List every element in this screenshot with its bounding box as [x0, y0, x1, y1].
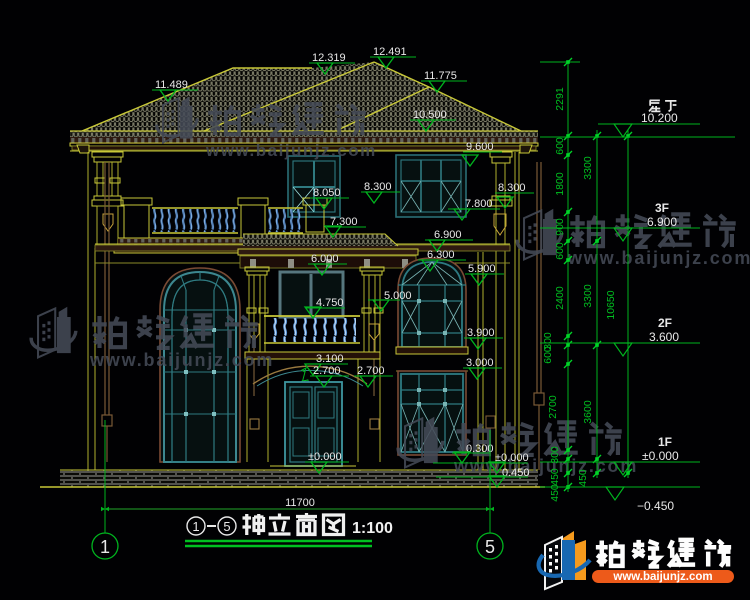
svg-text:450: 450 [577, 469, 589, 487]
svg-text:11.775: 11.775 [424, 70, 457, 82]
svg-text:12.491: 12.491 [373, 46, 407, 58]
svg-text:5: 5 [223, 519, 230, 534]
svg-text:2F: 2F [658, 316, 672, 330]
svg-text:11.489: 11.489 [155, 79, 188, 91]
svg-text:6.300: 6.300 [427, 249, 455, 261]
svg-text:6.000: 6.000 [311, 253, 339, 265]
svg-text:3.100: 3.100 [316, 353, 344, 365]
svg-text:www.baijunjz.com: www.baijunjz.com [205, 141, 377, 160]
svg-text:www.baijunjz.com: www.baijunjz.com [612, 571, 712, 583]
svg-text:3.900: 3.900 [467, 327, 495, 339]
svg-text:10.500: 10.500 [413, 109, 447, 121]
svg-text:300: 300 [549, 446, 561, 464]
svg-text:3.600: 3.600 [649, 330, 679, 344]
svg-text:−0.450: −0.450 [637, 499, 674, 513]
svg-text:3300: 3300 [582, 284, 594, 308]
svg-text:1800: 1800 [554, 172, 566, 196]
svg-text:±0.000: ±0.000 [308, 451, 342, 463]
svg-text:±0.000: ±0.000 [642, 449, 679, 463]
svg-text:www.baijunjz.com: www.baijunjz.com [453, 456, 638, 476]
svg-text:900: 900 [554, 218, 566, 236]
svg-text:10.200: 10.200 [641, 111, 678, 125]
svg-text:6.900: 6.900 [434, 229, 462, 241]
svg-text:6.900: 6.900 [647, 215, 677, 229]
svg-text:600: 600 [554, 137, 566, 155]
svg-text:2700: 2700 [547, 395, 559, 419]
svg-text:8.050: 8.050 [313, 187, 341, 199]
svg-text:2291: 2291 [554, 87, 566, 111]
svg-text:9.600: 9.600 [466, 141, 494, 153]
svg-text:3300: 3300 [582, 156, 594, 180]
svg-text:2.700: 2.700 [313, 365, 341, 377]
svg-text:7.800: 7.800 [465, 198, 493, 210]
svg-text:600: 600 [554, 242, 566, 260]
svg-text:3600: 3600 [582, 400, 594, 424]
svg-text:1: 1 [192, 519, 199, 534]
svg-text:450: 450 [549, 468, 561, 486]
svg-text:600: 600 [542, 346, 554, 364]
svg-text:8.300: 8.300 [364, 181, 392, 193]
svg-text:www.baijunjz.com: www.baijunjz.com [567, 248, 750, 268]
svg-text:5: 5 [485, 537, 495, 557]
svg-text:2.700: 2.700 [357, 365, 385, 377]
svg-text:1F: 1F [658, 435, 672, 449]
svg-text:11700: 11700 [285, 497, 315, 509]
svg-text:1: 1 [100, 537, 110, 557]
svg-text:5.900: 5.900 [468, 263, 496, 275]
svg-text:8.300: 8.300 [498, 182, 526, 194]
svg-text:10650: 10650 [605, 290, 617, 319]
svg-text:12.319: 12.319 [312, 52, 346, 64]
svg-text:1:100: 1:100 [352, 520, 393, 537]
svg-text:www.baijunjz.com: www.baijunjz.com [89, 350, 274, 370]
svg-text:3.000: 3.000 [466, 357, 494, 369]
svg-text:3F: 3F [655, 201, 669, 215]
svg-text:2400: 2400 [554, 286, 566, 310]
